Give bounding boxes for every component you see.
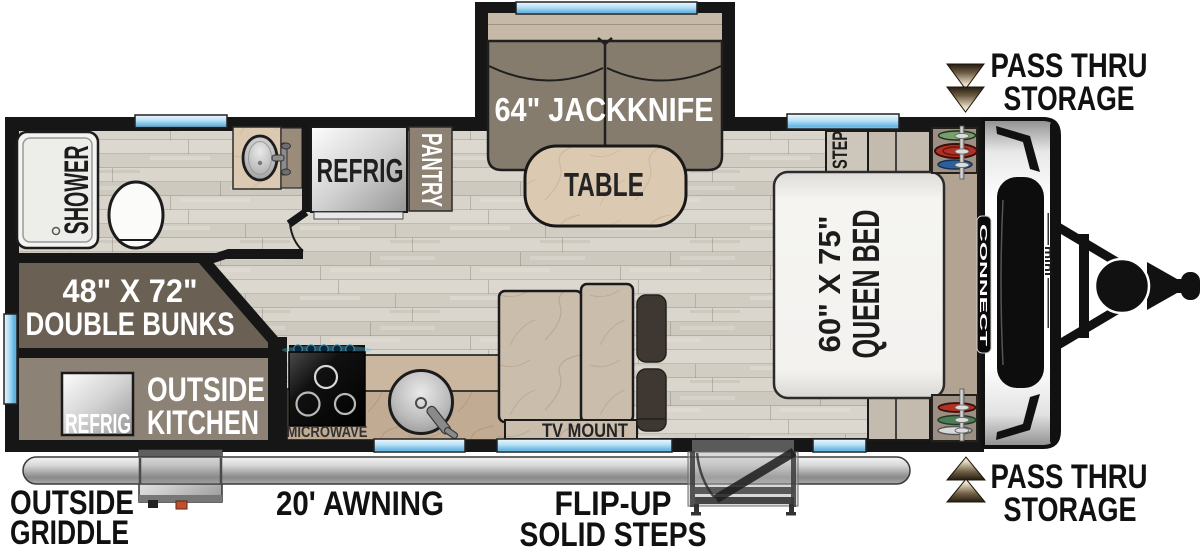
svg-text:48" X 72": 48" X 72" xyxy=(63,273,198,309)
svg-text:60" X 75": 60" X 75" xyxy=(812,216,847,353)
svg-text:REFRIG: REFRIG xyxy=(317,152,404,189)
svg-text:PANTRY: PANTRY xyxy=(415,133,447,207)
svg-text:QUEEN BED: QUEEN BED xyxy=(846,210,888,359)
svg-text:STORAGE: STORAGE xyxy=(1004,491,1137,529)
svg-text:SHOWER: SHOWER xyxy=(58,146,96,235)
svg-text:20' AWNING: 20' AWNING xyxy=(276,485,444,523)
svg-text:TABLE: TABLE xyxy=(564,166,644,203)
svg-text:STORAGE: STORAGE xyxy=(1004,80,1135,118)
svg-text:DOUBLE BUNKS: DOUBLE BUNKS xyxy=(26,306,235,342)
svg-text:KITCHEN: KITCHEN xyxy=(147,404,259,442)
svg-text:SOLID STEPS: SOLID STEPS xyxy=(520,516,707,552)
svg-text:STEP: STEP xyxy=(829,131,852,169)
svg-text:GRIDDLE: GRIDDLE xyxy=(10,514,129,552)
svg-text:CONNECT: CONNECT xyxy=(977,224,989,347)
svg-text:mini: mini xyxy=(1042,246,1053,276)
svg-text:MICROWAVE: MICROWAVE xyxy=(287,424,368,441)
svg-text:64" JACKKNIFE: 64" JACKKNIFE xyxy=(495,91,714,128)
svg-text:REFRIG: REFRIG xyxy=(65,408,131,439)
